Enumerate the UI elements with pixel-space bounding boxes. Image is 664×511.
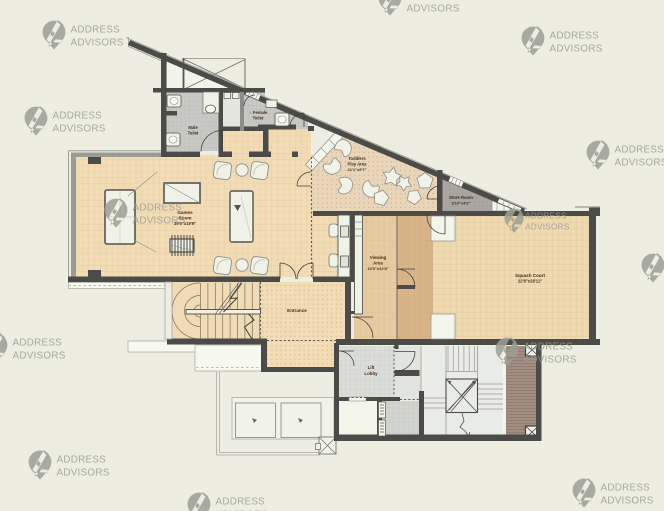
- svg-text:ADVISORS: ADVISORS: [524, 355, 577, 366]
- svg-text:ADVISORS: ADVISORS: [53, 124, 106, 135]
- svg-text:ADVISORS: ADVISORS: [407, 4, 460, 15]
- svg-text:Lift: Lift: [368, 365, 375, 370]
- svg-text:Toilet: Toilet: [253, 116, 264, 121]
- svg-text:Toilet: Toilet: [188, 131, 199, 136]
- svg-text:ADVISORS: ADVISORS: [550, 44, 603, 55]
- svg-text:Male: Male: [188, 125, 198, 130]
- svg-text:ADDRESS: ADDRESS: [524, 342, 574, 353]
- svg-text:ADDRESS: ADDRESS: [53, 111, 103, 122]
- svg-text:ADVISORS: ADVISORS: [71, 38, 124, 49]
- svg-text:ADVISORS: ADVISORS: [57, 468, 110, 479]
- svg-text:Play Area: Play Area: [348, 162, 368, 167]
- svg-text:ADDRESS: ADDRESS: [133, 203, 183, 214]
- svg-text:ADVISORS: ADVISORS: [601, 496, 654, 507]
- svg-text:ADDRESS: ADDRESS: [550, 31, 600, 42]
- svg-text:8'10"x4'2": 8'10"x4'2": [451, 201, 470, 206]
- svg-text:Lobby: Lobby: [364, 371, 378, 376]
- svg-text:ADDRESS: ADDRESS: [615, 145, 664, 156]
- svg-text:ADDRESS: ADDRESS: [13, 338, 63, 349]
- svg-text:ADDRESS: ADDRESS: [57, 455, 107, 466]
- svg-text:Area: Area: [373, 261, 383, 266]
- svg-text:ADVISORS: ADVISORS: [525, 221, 570, 231]
- svg-text:ADVISORS: ADVISORS: [615, 158, 664, 169]
- svg-text:ADVISORS: ADVISORS: [133, 216, 186, 227]
- svg-text:ADVISORS: ADVISORS: [13, 351, 66, 362]
- svg-text:Squash Court: Squash Court: [515, 273, 546, 278]
- svg-text:ADDRESS: ADDRESS: [601, 483, 651, 494]
- svg-text:Viewing: Viewing: [370, 255, 387, 260]
- svg-text:♀ Female: ♀ Female: [249, 110, 268, 115]
- svg-text:Toddlers: Toddlers: [348, 156, 366, 161]
- svg-text:Store Room: Store Room: [449, 195, 473, 200]
- svg-text:10'0"x22'8": 10'0"x22'8": [367, 266, 388, 271]
- svg-text:22'8"x28'11": 22'8"x28'11": [518, 279, 542, 284]
- svg-text:ADDRESS: ADDRESS: [71, 25, 121, 36]
- svg-text:ADDRESS: ADDRESS: [525, 211, 567, 221]
- svg-text:Entrance: Entrance: [287, 308, 307, 313]
- svg-text:21'1"x9'7": 21'1"x9'7": [347, 167, 366, 172]
- svg-text:ADDRESS: ADDRESS: [216, 497, 266, 508]
- svg-text:ADDRESS: ADDRESS: [407, 0, 457, 2]
